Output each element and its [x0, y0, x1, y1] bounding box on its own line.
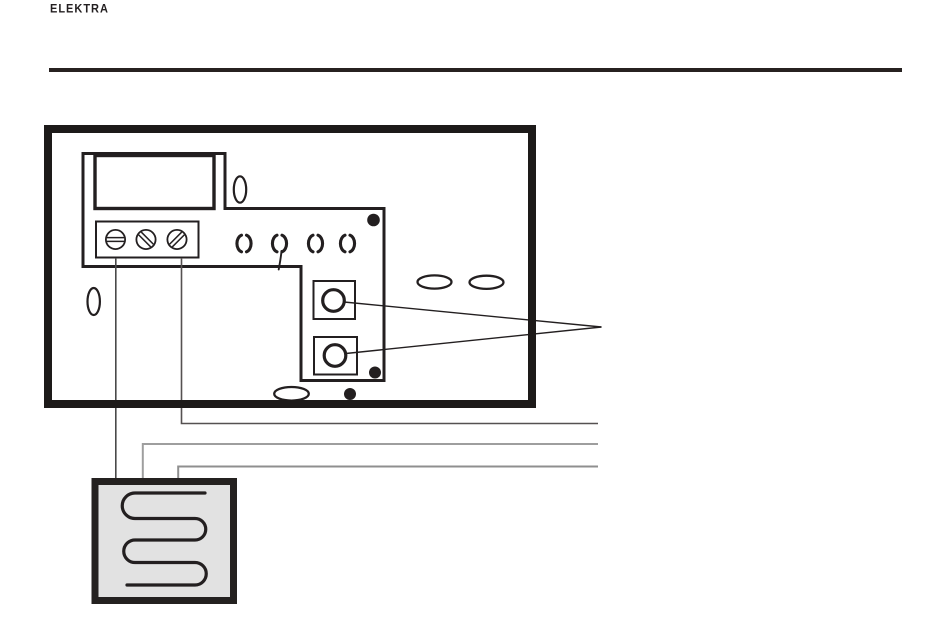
page-root: { "header": { "logo_text": "ELEKTRA" }, … [0, 0, 950, 644]
display-window [95, 156, 214, 209]
sensor-terminal-icon [314, 281, 356, 319]
heating-mat-icon [95, 482, 234, 601]
terminal-block-frame [96, 222, 199, 258]
heating-mat-lead-wire [143, 444, 598, 480]
screw-dot-icon [367, 214, 380, 227]
terminal-block [96, 222, 199, 258]
wiring-diagram [0, 0, 950, 644]
screw-dot-icon [344, 388, 356, 400]
sensor-terminal-icon [314, 337, 357, 375]
heating-mat-lead-wire [178, 467, 598, 481]
screw-dot-icon [369, 367, 381, 379]
